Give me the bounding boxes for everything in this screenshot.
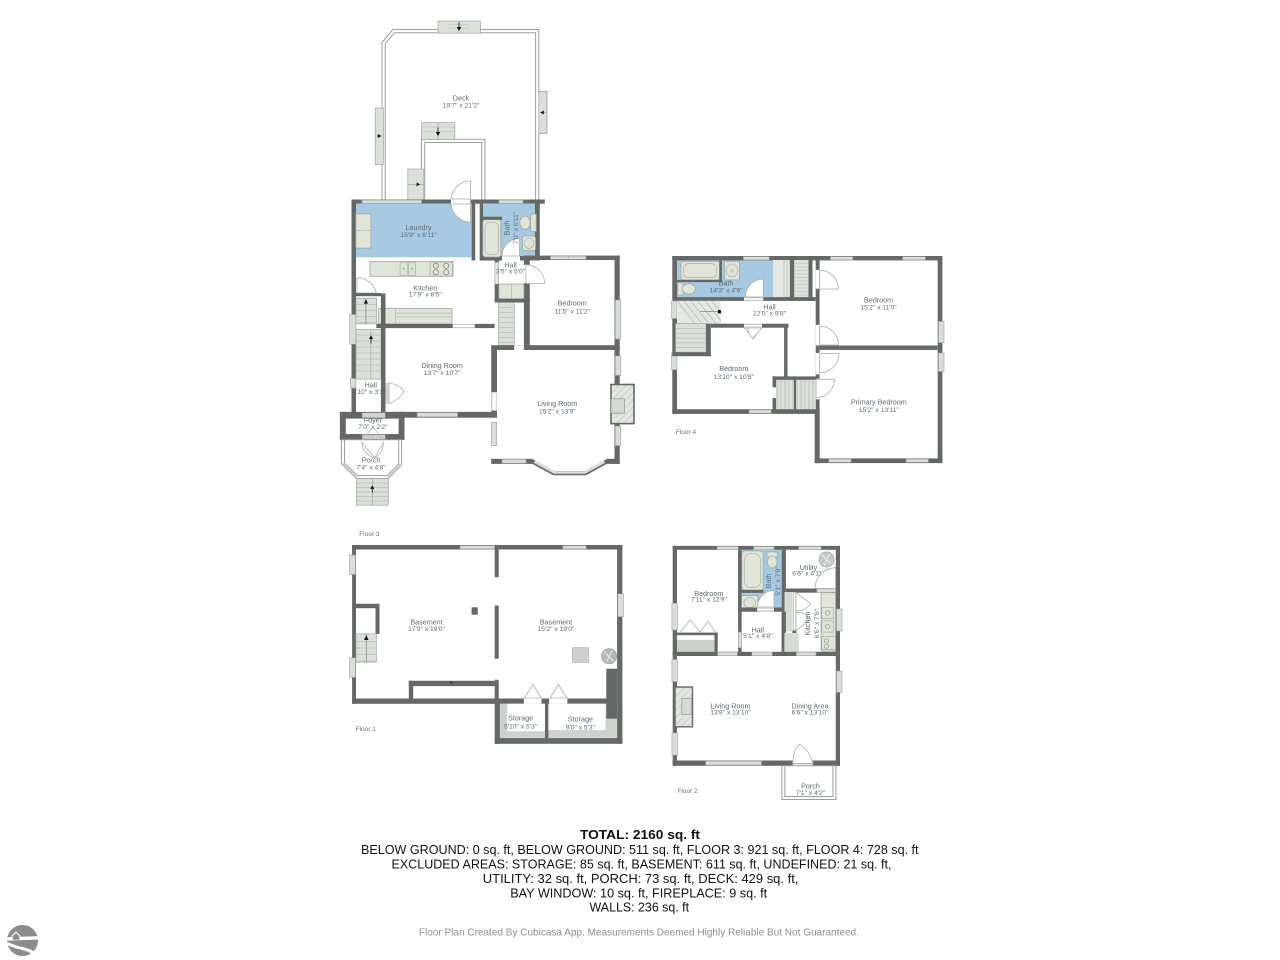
svg-text:Storage: Storage xyxy=(568,715,593,724)
svg-text:13'10" x 10'8": 13'10" x 10'8" xyxy=(714,374,755,381)
svg-text:Laundry: Laundry xyxy=(406,223,432,232)
svg-text:3'10" x 3'10": 3'10" x 3'10" xyxy=(352,389,389,396)
svg-text:15'2" x 13'9": 15'2" x 13'9" xyxy=(539,409,576,416)
svg-text:5'10" x 5'3": 5'10" x 5'3" xyxy=(504,723,538,730)
svg-text:19'7" x 21'2": 19'7" x 21'2" xyxy=(443,102,480,109)
svg-text:13'7" x 10'7": 13'7" x 10'7" xyxy=(424,370,461,377)
svg-text:Floor Plan Created By Cubicasa: Floor Plan Created By Cubicasa App. Meas… xyxy=(419,926,859,938)
svg-text:15'2" x 13'11": 15'2" x 13'11" xyxy=(859,407,900,414)
svg-text:Bath: Bath xyxy=(503,221,512,236)
svg-text:TOTAL: 2160 sq. ft: TOTAL: 2160 sq. ft xyxy=(580,827,701,842)
svg-text:Bath: Bath xyxy=(764,574,773,589)
svg-text:5'1" x 7'9": 5'1" x 7'9" xyxy=(775,566,782,596)
svg-text:6'6" x 13'10": 6'6" x 13'10" xyxy=(792,709,829,716)
svg-text:Floor 4: Floor 4 xyxy=(676,429,697,436)
svg-text:15'9" x 6'11": 15'9" x 6'11" xyxy=(400,232,437,239)
svg-text:5'1" x 4'8": 5'1" x 4'8" xyxy=(743,633,773,640)
svg-text:Floor 3: Floor 3 xyxy=(359,531,380,538)
svg-text:17'9" x 19'0": 17'9" x 19'0" xyxy=(408,626,445,633)
svg-text:15'2" x 19'0": 15'2" x 19'0" xyxy=(538,626,575,633)
svg-text:Floor 2: Floor 2 xyxy=(677,788,698,795)
svg-text:WALLS: 236 sq. ft: WALLS: 236 sq. ft xyxy=(590,900,690,915)
svg-text:7'1" x 4'2": 7'1" x 4'2" xyxy=(796,790,826,797)
svg-text:Floor 1: Floor 1 xyxy=(356,726,377,733)
svg-text:Primary Bedroom: Primary Bedroom xyxy=(851,398,907,407)
svg-text:Deck: Deck xyxy=(453,94,470,103)
svg-text:7'11" x 12'9": 7'11" x 12'9" xyxy=(691,597,728,604)
svg-text:BAY WINDOW: 10 sq. ft, FIREPLA: BAY WINDOW: 10 sq. ft, FIREPLACE: 9 sq. … xyxy=(510,885,767,900)
svg-text:Living Room: Living Room xyxy=(537,399,577,408)
svg-text:Foyer: Foyer xyxy=(364,415,383,424)
svg-text:12'0" x 9'8": 12'0" x 9'8" xyxy=(753,311,787,318)
svg-text:15'2" x 11'0": 15'2" x 11'0" xyxy=(860,305,897,312)
svg-text:17'9" x 8'5": 17'9" x 8'5" xyxy=(409,292,443,299)
svg-text:13'8" x 13'10": 13'8" x 13'10" xyxy=(710,709,751,716)
svg-text:Storage: Storage xyxy=(508,714,533,723)
svg-text:Dining Room: Dining Room xyxy=(421,361,463,370)
svg-text:11'5" x 11'2": 11'5" x 11'2" xyxy=(554,308,590,315)
svg-text:14'3" x 4'9": 14'3" x 4'9" xyxy=(710,287,744,294)
svg-text:UTILITY: 32 sq. ft, PORCH: 73: UTILITY: 32 sq. ft, PORCH: 73 sq. ft, DE… xyxy=(483,871,799,886)
svg-text:9'0" x 5'3": 9'0" x 5'3" xyxy=(566,725,596,732)
svg-text:BELOW GROUND: 0 sq. ft, BELOW: BELOW GROUND: 0 sq. ft, BELOW GROUND: 51… xyxy=(361,842,919,857)
svg-text:Porch: Porch xyxy=(801,781,820,790)
svg-text:7'0" x 6'11": 7'0" x 6'11" xyxy=(513,211,520,244)
svg-text:7'4" x 4'8": 7'4" x 4'8" xyxy=(356,464,386,471)
svg-text:7'0" x 2'2": 7'0" x 2'2" xyxy=(358,424,388,431)
svg-text:Kitchen: Kitchen xyxy=(803,612,812,636)
svg-text:6'6" x 7'6": 6'6" x 7'6" xyxy=(814,608,821,638)
svg-text:Porch: Porch xyxy=(362,456,381,465)
svg-text:EXCLUDED AREAS: STORAGE: 85 sq: EXCLUDED AREAS: STORAGE: 85 sq. ft, BASE… xyxy=(392,856,892,871)
svg-text:Hall: Hall xyxy=(365,380,378,389)
svg-text:Bedroom: Bedroom xyxy=(864,296,893,305)
svg-text:3'5" x 5'0": 3'5" x 5'0" xyxy=(496,268,526,275)
svg-text:Bedroom: Bedroom xyxy=(558,299,587,308)
svg-text:Bedroom: Bedroom xyxy=(719,364,748,373)
